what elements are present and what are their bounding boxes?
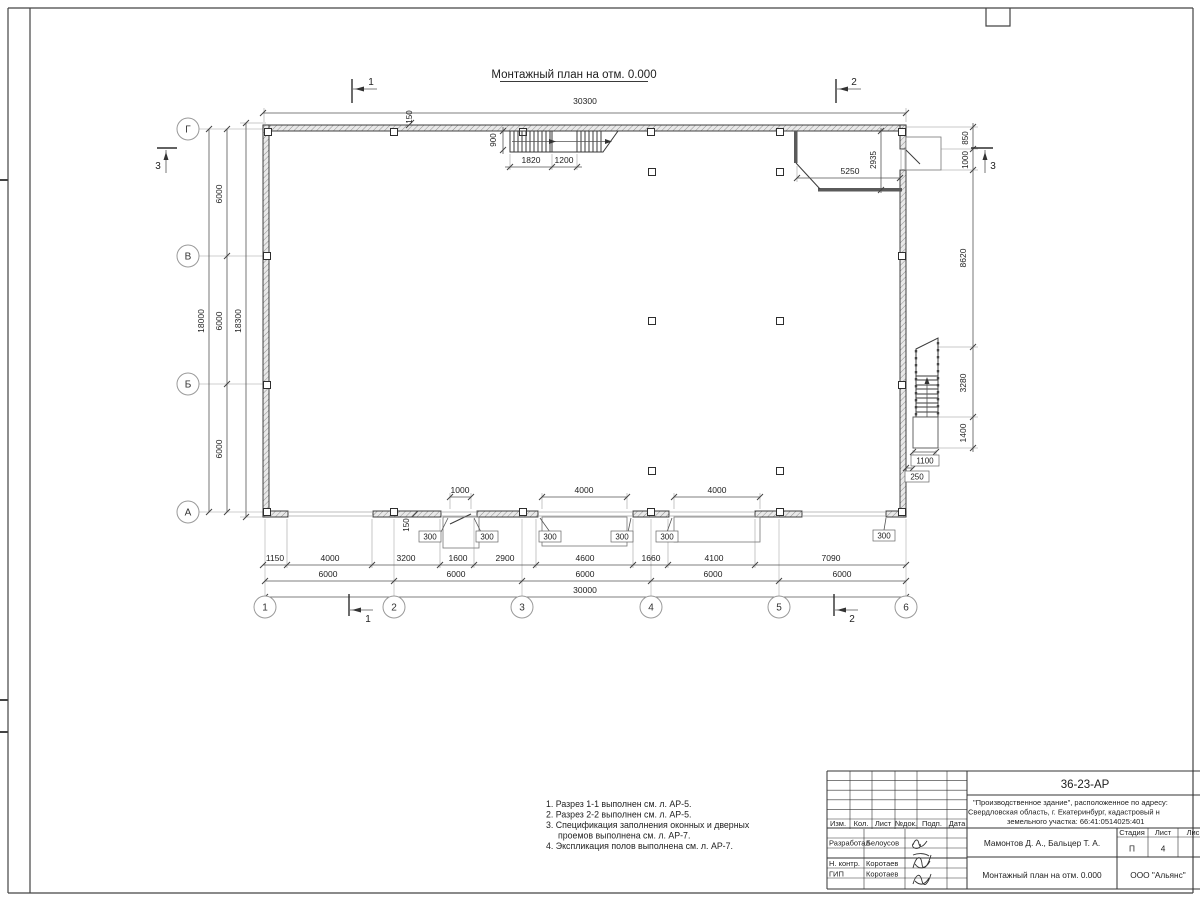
fold-marks: [0, 180, 8, 732]
doc-number: 36-23-АР: [1061, 779, 1110, 791]
wall-left: [263, 125, 269, 517]
dim-label: 1660: [642, 553, 661, 563]
role-label: ГИП: [829, 870, 844, 879]
axis-col-label: 2: [391, 603, 397, 614]
section-mark-label: 3: [990, 161, 996, 172]
svg-text:300: 300: [877, 532, 891, 541]
axis-col-label: 5: [776, 603, 782, 614]
dim-label: 150: [402, 518, 411, 532]
stage-value: П: [1129, 844, 1135, 854]
dim-label: 1100: [916, 457, 934, 466]
dim-label: 250: [910, 473, 924, 482]
rev-col-header: Лист: [875, 819, 892, 828]
tambour-wall-vertical: [794, 131, 798, 163]
grid-axes: Г В Б А 1 2 3 4 5 6: [177, 118, 917, 618]
note-line: 2. Разрез 2-2 выполнен см. л. АР-5.: [546, 810, 691, 820]
signature: [912, 840, 927, 848]
note-line: проемов выполнена см. л. АР-7.: [558, 831, 690, 841]
svg-text:300: 300: [615, 533, 629, 542]
wall-bottom-2: [373, 511, 441, 517]
apron-2: [674, 517, 760, 542]
section-mark-label: 3: [155, 161, 161, 172]
dim-label: 18000: [196, 309, 206, 333]
dim-label: 7090: [822, 553, 841, 563]
dim-label: 6000: [576, 569, 595, 579]
role-name: Коротаев: [866, 870, 898, 879]
wall-right-lower: [900, 170, 906, 517]
dim-label: 3280: [958, 373, 968, 392]
sheet-title: Монтажный план на отм. 0.000: [982, 870, 1102, 880]
object-line: земельного участка: 66:41:0514025:401: [1007, 817, 1144, 826]
dim-label: 4000: [708, 485, 727, 495]
plan-title: Монтажный план на отм. 0.000: [491, 69, 656, 81]
dim-label: 18300: [233, 309, 243, 333]
stair-top: [510, 131, 618, 152]
rev-col-header: Кол.: [854, 819, 869, 828]
dim-label: 6000: [214, 184, 224, 203]
signature: [913, 874, 931, 885]
exterior-landing: [906, 137, 941, 170]
notes-list: 1. Разрез 1-1 выполнен см. л. АР-5. 2. Р…: [546, 799, 750, 851]
wall-top: [263, 125, 906, 131]
dim-label: 6000: [214, 439, 224, 458]
format-stamp-box: [986, 8, 1010, 26]
rev-col-header: Дата: [949, 819, 966, 828]
reveal-labels: 300 300 300 300 300 300: [419, 518, 895, 542]
role-label: Разработал: [829, 839, 870, 848]
dim-label: 30000: [573, 585, 597, 595]
dim-label: 900: [489, 133, 498, 147]
rev-col-header: Подп.: [922, 819, 942, 828]
dim-label: 6000: [447, 569, 466, 579]
dim-label: 6000: [833, 569, 852, 579]
stage-header: Стадия: [1119, 828, 1145, 837]
axis-row-label: Б: [185, 380, 192, 391]
company: ООО "Альянс": [1130, 870, 1186, 880]
axis-col-label: 1: [262, 603, 268, 614]
sheets-header: Лис: [1187, 828, 1200, 837]
dimension-labels: 30300 150 900 1820 1200 5250 2935 850 10…: [196, 96, 970, 595]
dim-label: 3200: [397, 553, 416, 563]
axis-row-label: В: [185, 252, 192, 263]
svg-text:300: 300: [543, 533, 557, 542]
role-name: Коротаев: [866, 859, 898, 868]
sheet-value: 4: [1161, 844, 1166, 854]
axis-col-label: 4: [648, 603, 654, 614]
wall-bottom-3: [477, 511, 538, 517]
svg-text:300: 300: [480, 533, 494, 542]
dim-label: 1000: [961, 151, 970, 169]
tambour-wall-horizontal: [818, 188, 902, 192]
tambour-room: [794, 131, 941, 192]
dim-label: 2935: [869, 151, 878, 169]
section-mark-label: 1: [365, 614, 371, 625]
section-mark-label: 1: [368, 77, 374, 88]
dim-label: 8620: [958, 248, 968, 267]
dim-label: 4000: [575, 485, 594, 495]
dim-label: 6000: [214, 311, 224, 330]
rev-col-header: №док.: [895, 819, 917, 828]
stair-right: [913, 338, 939, 448]
sheet-header: Лист: [1155, 828, 1172, 837]
dim-label: 6000: [704, 569, 723, 579]
dim-label: 4600: [576, 553, 595, 563]
dim-label: 1820: [522, 155, 541, 165]
dimension-lines: [206, 110, 976, 600]
dim-label: 4100: [705, 553, 724, 563]
role-name: Белоусов: [866, 839, 899, 848]
section-mark-label: 2: [849, 614, 855, 625]
dim-label: 1200: [555, 155, 574, 165]
dim-label: 5250: [841, 166, 860, 176]
dim-label: 150: [405, 110, 414, 124]
note-line: 1. Разрез 1-1 выполнен см. л. АР-5.: [546, 799, 691, 809]
grid-lines: [199, 108, 978, 596]
note-line: 4. Экспликация полов выполнена см. л. АР…: [546, 841, 733, 851]
object-line: Свердловская область, г. Екатеринбург, к…: [968, 808, 1160, 817]
columns: [264, 129, 906, 516]
dim-label: 850: [961, 131, 970, 145]
dim-label: 1400: [958, 423, 968, 442]
stair-landing: [913, 417, 938, 448]
svg-text:300: 300: [423, 533, 437, 542]
title-block: 36-23-АР "Производственное здание", расп…: [827, 771, 1200, 889]
dim-label: 6000: [319, 569, 338, 579]
dim-label: 4000: [321, 553, 340, 563]
signature: [913, 854, 931, 868]
role-label: Н. контр.: [829, 859, 860, 868]
axis-row-label: Г: [185, 125, 191, 136]
axis-row-label: А: [185, 508, 192, 519]
dim-label: 1600: [449, 553, 468, 563]
axis-col-label: 3: [519, 603, 525, 614]
dim-label: 30300: [573, 96, 597, 106]
note-line: 3. Спецификация заполнения оконных и две…: [546, 820, 750, 830]
entry-door-leaf: [450, 514, 471, 524]
svg-text:300: 300: [660, 533, 674, 542]
drawing-sheet: Монтажный план на отм. 0.000: [0, 0, 1200, 900]
right-door-opening: [901, 149, 905, 170]
axis-col-label: 6: [903, 603, 909, 614]
dim-label: 2900: [496, 553, 515, 563]
authors: Мамонтов Д. А., Бальцер Т. А.: [984, 838, 1100, 848]
rev-col-header: Изм.: [830, 819, 846, 828]
dim-label: 1150: [266, 553, 285, 563]
section-mark-label: 2: [851, 77, 857, 88]
object-line: "Производственное здание", расположенное…: [973, 798, 1168, 807]
dim-label: 1000: [451, 485, 470, 495]
exterior-walls: [263, 125, 906, 517]
